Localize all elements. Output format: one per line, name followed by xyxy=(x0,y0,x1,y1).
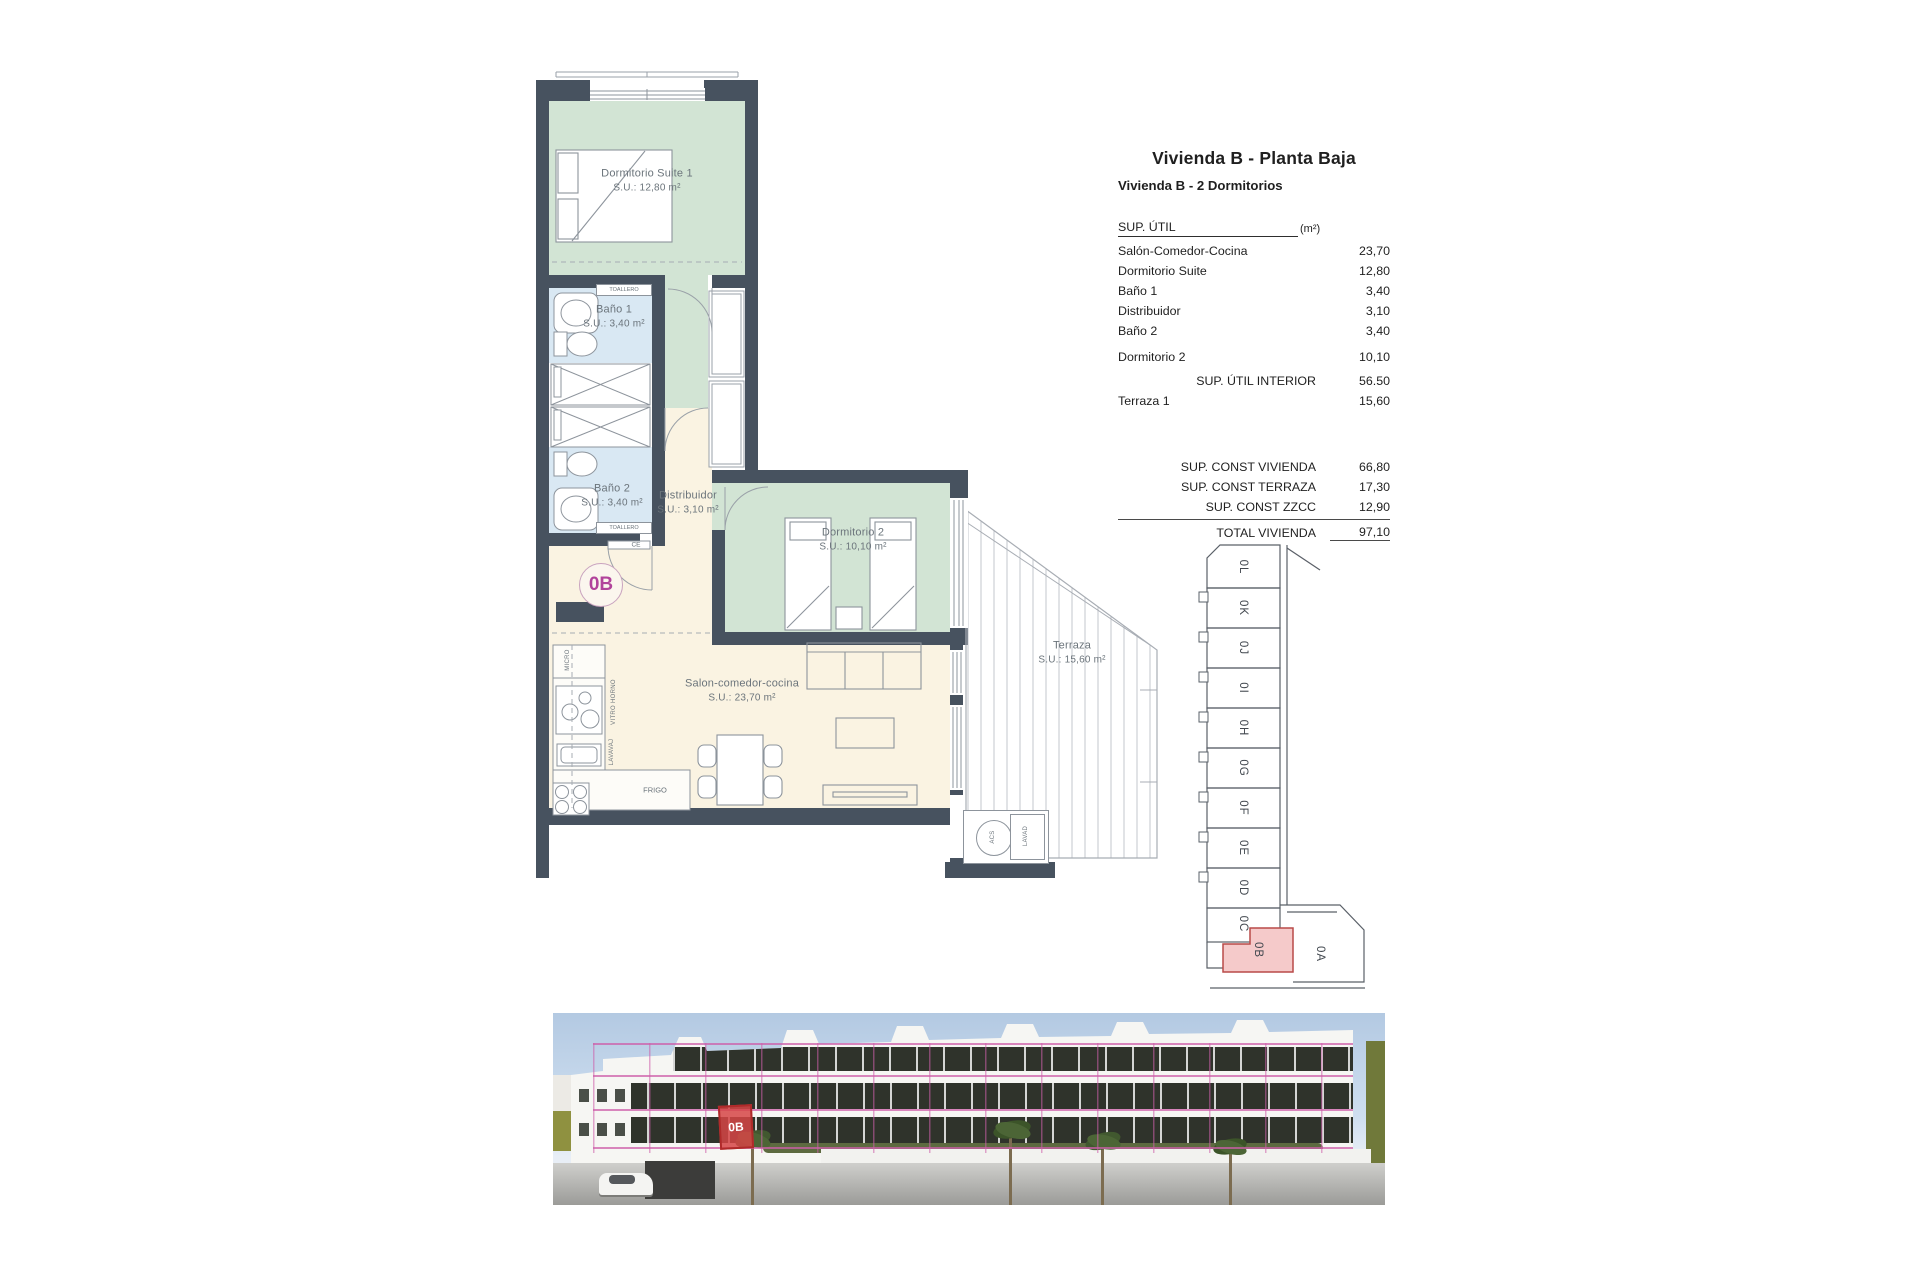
distribuidor-label: Distribuidor S.U.: 3,10 m² xyxy=(657,488,719,517)
key-plan-unit: 0L xyxy=(1237,560,1249,575)
key-plan: 0L 0K 0J 0I 0H 0G 0F 0E 0D 0C 0B 0A xyxy=(1180,540,1390,1010)
key-plan-unit: 0H xyxy=(1237,720,1249,737)
table-row: Baño 13,40 xyxy=(1118,281,1390,301)
frigo-label: FRIGO xyxy=(643,786,667,795)
wall xyxy=(536,80,590,88)
room-dormitorio2 xyxy=(712,483,950,632)
room-name: Distribuidor xyxy=(657,488,719,503)
window xyxy=(579,1123,589,1136)
const-row: SUP. CONST TERRAZA17,30 xyxy=(1118,477,1390,497)
key-plan-unit: 0K xyxy=(1237,600,1249,616)
dorm2-label: Dormitorio 2 S.U.: 10,10 m² xyxy=(819,525,886,554)
key-plan-unit: 0G xyxy=(1237,759,1249,776)
room-salon-left xyxy=(549,612,712,808)
room-name: Baño 2 xyxy=(581,481,643,496)
table-row: Salón-Comedor-Cocina23,70 xyxy=(1118,241,1390,261)
room-name: Terraza xyxy=(1038,638,1105,653)
key-plan-unit-highlight: 0B xyxy=(1252,942,1264,958)
room-name: Baño 1 xyxy=(583,302,645,317)
vegetation-right xyxy=(1366,1041,1385,1166)
building-render-photo: 0B xyxy=(553,1013,1385,1205)
info-panel: Vivienda B - Planta Baja Vivienda B - 2 … xyxy=(1118,148,1390,543)
subtotal-row: SUP. ÚTIL INTERIOR56.50 xyxy=(1118,371,1390,391)
key-plan-unit: 0I xyxy=(1237,682,1249,694)
room-area: S.U.: 3,40 m² xyxy=(581,497,643,511)
wall xyxy=(536,533,640,546)
toallero-bar: TOALLERO xyxy=(596,284,652,296)
suite-label: Dormitorio Suite 1 S.U.: 12,80 m² xyxy=(601,166,693,195)
photo-unit-badge-label: 0B xyxy=(728,1120,744,1135)
room-salon-right xyxy=(712,645,950,808)
lavavaj-label: LAVAVAJ xyxy=(609,739,615,766)
wardrobe-icon xyxy=(709,291,744,467)
garage-entrance xyxy=(645,1161,715,1199)
unit-badge-label: 0B xyxy=(589,574,613,596)
room-area: S.U.: 23,70 m² xyxy=(685,692,799,706)
room-area: S.U.: 10,10 m² xyxy=(819,541,886,555)
terraza-label: Terraza S.U.: 15,60 m² xyxy=(1038,638,1105,667)
wall xyxy=(712,632,950,645)
const-row: SUP. CONST VIVIENDA66,80 xyxy=(1118,457,1390,477)
wall xyxy=(704,80,758,88)
window xyxy=(579,1089,589,1102)
header-label: SUP. ÚTIL xyxy=(1118,220,1298,237)
table-row: Dormitorio 210,10 xyxy=(1118,347,1390,367)
bano2-label: Baño 2 S.U.: 3,40 m² xyxy=(581,481,643,510)
room-area: S.U.: 3,40 m² xyxy=(583,318,645,332)
header-unit: (m²) xyxy=(1300,223,1320,237)
photo-unit-badge: 0B xyxy=(718,1104,754,1150)
wall xyxy=(950,483,968,645)
key-plan-unit: 0F xyxy=(1237,800,1249,815)
table-header: SUP. ÚTIL (m²) xyxy=(1118,220,1390,237)
unit-grid-overlay xyxy=(593,1043,1353,1153)
const-row: SUP. CONST ZZCC12,90 xyxy=(1118,497,1390,517)
room-area: S.U.: 12,80 m² xyxy=(601,182,693,196)
room-name: Salon-comedor-cocina xyxy=(685,676,799,691)
micro-label: MICRO xyxy=(565,649,571,671)
toallero-label: TOALLERO xyxy=(609,525,638,531)
bano1-label: Baño 1 S.U.: 3,40 m² xyxy=(583,302,645,331)
wall xyxy=(712,275,758,288)
page-subtitle: Vivienda B - 2 Dormitorios xyxy=(1118,178,1390,193)
wall xyxy=(536,88,549,878)
room-area: S.U.: 3,10 m² xyxy=(657,504,719,518)
wall xyxy=(950,645,963,878)
toallero-bar: TOALLERO xyxy=(596,522,652,534)
wall xyxy=(712,470,968,483)
ce-label: CE xyxy=(631,542,640,549)
room-name: Dormitorio Suite 1 xyxy=(601,166,693,181)
key-plan-unit: 0D xyxy=(1237,880,1249,897)
table-row: Dormitorio Suite12,80 xyxy=(1118,261,1390,281)
key-plan-unit: 0C xyxy=(1237,916,1249,933)
key-plan-unit: 0A xyxy=(1314,946,1326,962)
unit-badge-circle: 0B xyxy=(579,563,623,607)
wall xyxy=(745,88,758,288)
table-row: Baño 23,40 xyxy=(1118,321,1390,341)
car xyxy=(599,1173,653,1195)
wall xyxy=(536,808,963,825)
wall xyxy=(712,530,725,645)
room-showers xyxy=(549,363,652,447)
lavad-label: LAVAD xyxy=(1023,826,1029,846)
room-area: S.U.: 15,60 m² xyxy=(1038,654,1105,668)
salon-label: Salon-comedor-cocina S.U.: 23,70 m² xyxy=(685,676,799,705)
table-row: Distribuidor3,10 xyxy=(1118,301,1390,321)
key-plan-linework xyxy=(1180,540,1390,1010)
key-plan-unit: 0E xyxy=(1237,840,1249,856)
key-plan-unit: 0J xyxy=(1237,641,1249,655)
room-name: Dormitorio 2 xyxy=(819,525,886,540)
wall xyxy=(945,862,1055,878)
page-title: Vivienda B - Planta Baja xyxy=(1118,148,1390,169)
table-row: Terraza 115,60 xyxy=(1118,391,1390,411)
toallero-label: TOALLERO xyxy=(609,287,638,293)
page: ACS LAVAD TOALLERO TOALLERO MICRO VITRO … xyxy=(0,0,1920,1280)
terraza-area xyxy=(966,510,1157,858)
car-windshield xyxy=(609,1175,635,1184)
wall xyxy=(549,88,590,101)
room-suite-corridor xyxy=(665,275,708,408)
acs-label: ACS xyxy=(990,830,996,843)
vitro-horno-label: VITRO HORNO xyxy=(611,679,617,725)
wall xyxy=(745,288,758,483)
